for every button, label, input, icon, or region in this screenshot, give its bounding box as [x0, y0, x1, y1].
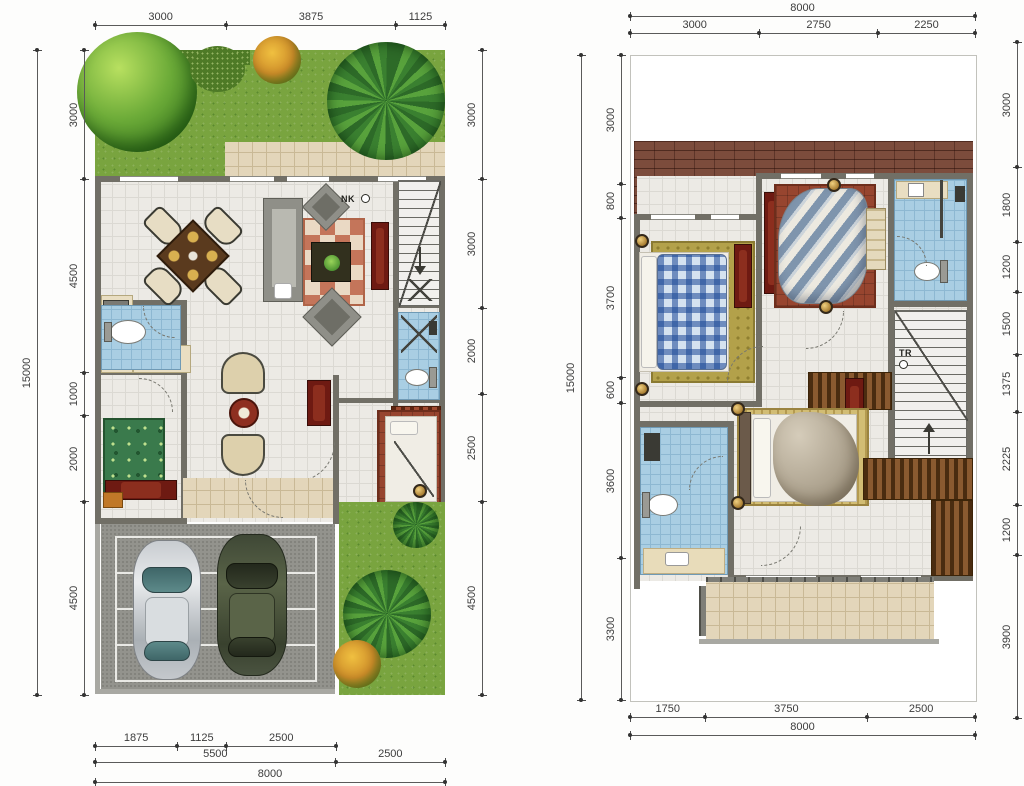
door-arc: [689, 456, 723, 490]
dimension-chain: 30001800120015001375222512003900: [1001, 42, 1018, 718]
car-green: [217, 534, 287, 676]
round-table: [229, 398, 259, 428]
dimension-tick: [630, 29, 631, 38]
stairs-arrow-icon: [923, 423, 935, 432]
bed-checkered: [657, 254, 727, 370]
window: [651, 214, 695, 220]
dimension-chain: 55002500: [95, 746, 445, 763]
pillow: [641, 256, 657, 368]
wardrobe: [734, 244, 752, 308]
dimension-tick: [1013, 505, 1022, 506]
dimension-chain: 187511252500: [95, 730, 336, 747]
dimension-tick: [478, 308, 487, 309]
dimension-label: 3700: [605, 286, 617, 310]
wall: [95, 689, 335, 694]
dimension-tick: [577, 700, 586, 701]
sofa: [263, 198, 303, 302]
dimension-tick: [478, 50, 487, 51]
bathroom-upper: [894, 179, 967, 301]
shrub-icon: [190, 46, 245, 92]
dimension-line: [95, 762, 445, 763]
dimension-tick: [1013, 718, 1022, 719]
balcony: [706, 581, 934, 639]
dimension-line: [95, 25, 445, 26]
palm-tree-icon: [393, 502, 439, 548]
dimension-label: 5500: [203, 748, 227, 760]
lamp-icon: [731, 496, 745, 510]
dimension-tick: [617, 184, 626, 185]
windshield: [226, 563, 278, 589]
dimension-label: 1000: [68, 382, 80, 406]
armchair: [221, 434, 265, 476]
toilet-tank: [642, 492, 650, 518]
pillow: [390, 421, 418, 435]
lamp-icon: [827, 178, 841, 192]
balcony-railing: [699, 586, 706, 636]
window: [230, 176, 274, 182]
dimension-tick: [877, 29, 878, 38]
dimension-tick: [759, 29, 760, 38]
upper-floor-plan: TR: [630, 55, 977, 702]
shower-fixture-icon: [644, 433, 660, 461]
palm-tree-icon: [327, 42, 445, 160]
label-circle-icon: [361, 194, 370, 203]
dimension-label: 3750: [774, 703, 798, 715]
ground-floor-plan: NK: [95, 50, 445, 695]
window: [846, 173, 874, 179]
dimension-chain: 8000: [630, 719, 975, 736]
dimension-tick: [33, 50, 42, 51]
dimension-label: 2225: [1001, 447, 1013, 471]
stairs-arrow-icon: [928, 432, 930, 454]
dimension-chain: 8000: [630, 0, 975, 17]
dimension-label: 2000: [68, 446, 80, 470]
dimension-tick: [80, 415, 89, 416]
dimension-tick: [478, 695, 487, 696]
cabinet: [371, 222, 389, 290]
pillow: [274, 283, 292, 299]
dimension-chain: 8000: [95, 766, 445, 783]
dimension-label: 2500: [909, 703, 933, 715]
coffee-table: [311, 242, 351, 282]
toilet-icon: [648, 494, 678, 516]
dimension-tick: [975, 731, 976, 740]
dimension-tick: [80, 501, 89, 502]
dimension-tick: [1013, 354, 1022, 355]
dimension-label: 1500: [1001, 311, 1013, 335]
dimension-label: 2500: [466, 436, 478, 460]
shower-head-icon: [429, 321, 437, 335]
dimension-chain: 300038751125: [95, 9, 445, 26]
soap-tray: [665, 552, 689, 566]
window: [120, 176, 178, 182]
rear-window: [228, 637, 276, 657]
dimension-label: 1375: [1001, 371, 1013, 395]
dimension-tick: [617, 403, 626, 404]
dimension-tick: [617, 218, 626, 219]
balcony-railing: [706, 577, 934, 582]
dimension-label: 2250: [914, 19, 938, 31]
dimension-label: 1750: [655, 703, 679, 715]
car-roof: [229, 593, 275, 643]
dimension-label: 1800: [1001, 192, 1013, 216]
tree-icon: [77, 32, 197, 152]
dimension-label: 2750: [806, 19, 830, 31]
window: [781, 173, 821, 179]
dimension-tick: [617, 558, 626, 559]
sofa-seat: [272, 209, 296, 287]
car-silver: [133, 540, 201, 680]
stair-label-nk: NK: [341, 194, 355, 204]
dimension-line: [630, 717, 975, 718]
wall: [95, 524, 100, 694]
partition-wall: [940, 180, 943, 238]
dimension-label: 3000: [466, 102, 478, 126]
dimension-label: 3000: [605, 107, 617, 131]
dimension-tick: [33, 695, 42, 696]
staircase: [894, 310, 967, 477]
bathroom-lower: [640, 427, 728, 575]
rear-window: [144, 641, 190, 661]
dimension-label: 2500: [378, 748, 402, 760]
toilet-icon: [110, 320, 146, 344]
dimension-tick: [1013, 42, 1022, 43]
dimension-tick: [478, 179, 487, 180]
bed-striped: [778, 188, 868, 304]
dimension-tick: [395, 21, 396, 30]
dimension-label: 4500: [466, 586, 478, 610]
dimension-tick: [617, 377, 626, 378]
pillow: [753, 418, 771, 498]
windshield: [142, 567, 192, 593]
dimension-label: 3900: [1001, 624, 1013, 648]
floor-plan-canvas: NK: [0, 0, 1024, 786]
dimension-label: 15000: [565, 362, 577, 393]
door-arc: [897, 236, 927, 266]
headboard: [739, 412, 751, 504]
dimension-label: 3000: [1001, 92, 1013, 116]
dimension-label: 1875: [124, 732, 148, 744]
dimension-line: [630, 735, 975, 736]
stairs-arrow-icon: [414, 266, 426, 275]
dimension-chain: 30004500100020004500: [68, 50, 85, 695]
dimension-label: 1200: [1001, 518, 1013, 542]
sink-icon: [908, 183, 924, 197]
dimension-tick: [80, 179, 89, 180]
dimension-tick: [478, 501, 487, 502]
dimension-label: 1200: [1001, 255, 1013, 279]
dimension-tick: [1013, 412, 1022, 413]
dimension-tick: [445, 21, 446, 30]
dimension-label: 2000: [466, 339, 478, 363]
dimension-label: 4500: [68, 586, 80, 610]
dimension-label: 15000: [21, 357, 33, 388]
dimension-line: [482, 50, 483, 695]
dimension-tick: [617, 700, 626, 701]
dimension-label: 8000: [790, 721, 814, 733]
dimension-chain: 3000800370060036003300: [605, 55, 622, 700]
dimension-label: 8000: [790, 2, 814, 14]
wall: [888, 301, 973, 307]
toilet-tank: [104, 322, 112, 342]
stair-label-tr: TR: [899, 348, 912, 358]
dimension-tick: [1013, 292, 1022, 293]
dimension-tick: [445, 778, 446, 786]
dimension-chain: 30003000200025004500: [466, 50, 483, 695]
toilet-tank: [429, 367, 437, 388]
dimension-chain: 15000: [21, 50, 38, 695]
lamp-icon: [635, 382, 649, 396]
dimension-tick: [1013, 167, 1022, 168]
dimension-label: 3000: [148, 11, 172, 23]
window: [711, 214, 739, 220]
dimension-label: 800: [605, 192, 617, 210]
armchair: [221, 352, 265, 394]
window: [287, 176, 329, 182]
plant-icon: [324, 255, 340, 271]
dimension-tick: [95, 21, 96, 30]
dimension-tick: [226, 21, 227, 30]
dimension-tick: [80, 372, 89, 373]
bathroom-small: [398, 312, 440, 400]
lamp-icon: [731, 402, 745, 416]
dimension-tick: [577, 55, 586, 56]
stair-cross-mark: [407, 279, 433, 301]
stairs-arrow-icon: [419, 247, 421, 267]
bench: [866, 208, 886, 270]
wall: [699, 639, 939, 644]
wardrobe: [307, 380, 331, 426]
dimension-tick: [80, 695, 89, 696]
dimension-tick: [975, 29, 976, 38]
dimension-line: [95, 782, 445, 783]
dimension-chain: 300027502250: [630, 17, 975, 34]
bush-icon: [253, 36, 301, 84]
dimension-label: 3000: [682, 19, 706, 31]
round-rug: [413, 484, 427, 498]
bush-icon: [333, 640, 381, 688]
dimension-label: 1125: [190, 732, 214, 744]
wardrobe-l-shape: [931, 500, 973, 576]
dimension-line: [630, 33, 975, 34]
label-circle-icon: [899, 360, 908, 369]
toilet-icon: [405, 369, 429, 386]
dimension-label: 4500: [68, 264, 80, 288]
staircase: [398, 180, 440, 306]
dimension-tick: [630, 731, 631, 740]
car-roof: [145, 597, 189, 647]
dimension-line: [581, 55, 582, 700]
shower-head-icon: [955, 186, 965, 202]
dimension-tick: [478, 394, 487, 395]
dimension-label: 2500: [269, 732, 293, 744]
dimension-label: 8000: [258, 768, 282, 780]
dimension-tick: [95, 778, 96, 786]
dimension-tick: [80, 50, 89, 51]
dimension-tick: [1013, 555, 1022, 556]
dimension-line: [37, 50, 38, 695]
dimension-label: 3600: [605, 468, 617, 492]
wardrobe-l-shape: [863, 458, 973, 500]
dimension-chain: 15000: [565, 55, 582, 700]
dimension-line: [1017, 42, 1018, 718]
lamp-icon: [635, 234, 649, 248]
mat: [103, 492, 123, 508]
dimension-label: 3300: [605, 617, 617, 641]
dimension-label: 3000: [68, 102, 80, 126]
dimension-tick: [617, 55, 626, 56]
bed: [385, 416, 437, 502]
dimension-label: 3875: [299, 11, 323, 23]
dimension-label: 600: [605, 381, 617, 399]
dimension-label: 1125: [409, 11, 433, 23]
toilet-tank: [940, 260, 948, 283]
dimension-label: 3000: [466, 231, 478, 255]
dimension-tick: [1013, 242, 1022, 243]
dimension-chain: 175037502500: [630, 701, 975, 718]
